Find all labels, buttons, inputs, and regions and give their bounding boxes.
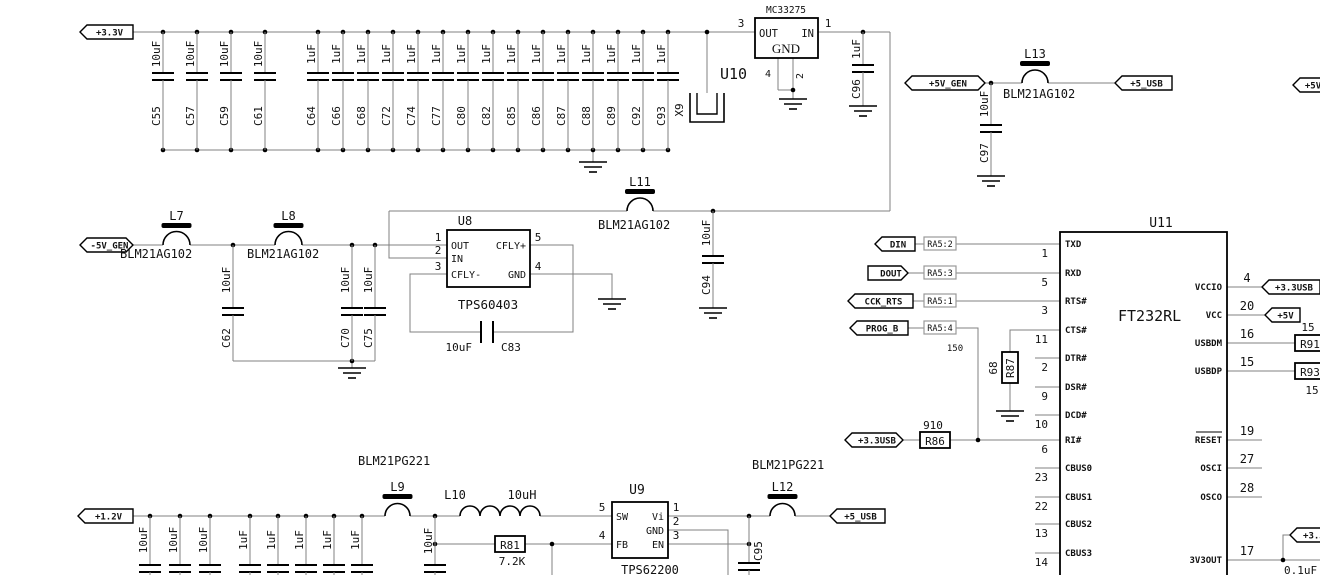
bead-hump (385, 504, 410, 517)
u11-pin-name-RI#: RI# (1065, 436, 1082, 446)
bead-hump (163, 232, 190, 246)
r91-ref: R91 (1300, 338, 1320, 351)
u11-pin-num: 10 (1035, 418, 1048, 431)
capacitor-C95: C95 (738, 516, 765, 575)
bead-hump (770, 504, 795, 517)
l7-part: BLM21AG102 (120, 247, 192, 261)
x9-ref: X9 (673, 103, 686, 116)
junction-dot (791, 88, 796, 93)
capacitor-value: 1uF (405, 44, 418, 64)
schematic-page: 10uFC5510uFC5710uFC5910uFC611uFC641uFC66… (0, 0, 1320, 575)
u8-pin-num-4: 4 (535, 260, 542, 273)
net-flag: +3.3V (80, 25, 133, 39)
u8-pin-num-2: 2 (435, 244, 442, 257)
wire (1283, 535, 1290, 560)
u11-pin-name-CBUS2: CBUS2 (1065, 520, 1092, 530)
ferrite-bead: L13 (1020, 47, 1050, 83)
capacitor-value: 1uF (480, 44, 493, 64)
u9-pin-gnd: GND (646, 526, 664, 537)
ra5-value: 150 (947, 344, 963, 354)
capacitor-ref: C61 (252, 106, 265, 126)
capacitor: 1uF (349, 516, 373, 575)
capacitor-C66: 1uFC66 (330, 32, 354, 150)
wire (493, 245, 573, 332)
u11-pin-num: 3 (1041, 304, 1048, 317)
capacitor-C62: 10uFC62 (220, 245, 244, 361)
u9-pin-en: EN (652, 540, 664, 551)
junction-dot (705, 30, 710, 35)
capacitor-C89: 1uFC89 (605, 32, 629, 150)
bead-ref: L8 (281, 209, 295, 223)
capacitor-C57: 10uFC57 (184, 32, 208, 150)
u11-pin-name-VCC: VCC (1206, 311, 1222, 321)
u9-pin-fb: FB (616, 540, 628, 551)
l8-part: BLM21AG102 (247, 247, 319, 261)
u8-pin-gnd: GND (508, 270, 526, 281)
u11-pin-num: 5 (1041, 276, 1048, 289)
ferrite-bead: L7 (162, 209, 192, 245)
ra5-label: RA5:2 (927, 240, 953, 250)
capacitor-value: 1uF (380, 44, 393, 64)
capacitor-ref: C97 (978, 143, 991, 163)
u8-pin-num-3: 3 (435, 260, 442, 273)
u11-pin-name-OSCI: OSCI (1200, 464, 1222, 474)
u11-pin-name-3V3OUT: 3V3OUT (1189, 556, 1222, 566)
u9-pin-num-1: 1 (673, 501, 680, 514)
capacitor-value: 10uF (422, 528, 435, 555)
net-flag-label: CCK_RTS (865, 298, 903, 308)
capacitor-value: 1uF (455, 44, 468, 64)
capacitor: 1uF (321, 516, 345, 575)
bead-hump (1022, 70, 1048, 83)
ferrite-bead: L8 (274, 209, 304, 245)
inductor-l10-coil (460, 506, 540, 516)
capacitor-ref: C87 (555, 106, 568, 126)
capacitor-C64: 1uFC64 (305, 32, 329, 150)
net-flag: +3.3USB (1262, 280, 1320, 294)
junction-dot (976, 438, 981, 443)
u11-pin-num: 9 (1041, 390, 1048, 403)
capacitor-C94: 10uFC94 (700, 211, 724, 308)
capacitor-C82: 1uFC82 (480, 32, 504, 150)
r86-value: 910 (923, 419, 943, 432)
capacitor-value: 1uF (655, 44, 668, 64)
capacitor-value: 1uF (355, 44, 368, 64)
capacitor-C80: 1uFC80 (455, 32, 479, 150)
ra5-network: RA5:2 RA5:3 RA5:1 RA5:4 150 (924, 237, 963, 354)
bead-bar (162, 223, 192, 228)
capacitor-ref: C86 (530, 106, 543, 126)
u11-pin-num: 2 (1041, 361, 1048, 374)
l11-part: BLM21AG102 (598, 218, 670, 232)
r81-ref: R81 (500, 539, 520, 552)
capacitor-ref: C66 (330, 106, 343, 126)
capacitor-ref: C95 (752, 541, 765, 561)
u11-pin-name-CTS#: CTS# (1065, 326, 1087, 336)
capacitor-value: 1uF (321, 530, 334, 550)
net-flag: +5_USB (1115, 76, 1172, 90)
u9-ref: U9 (629, 483, 645, 498)
capacitor-ref: C72 (380, 106, 393, 126)
u8-pin-out: OUT (451, 241, 469, 252)
ic-u8: U8 TPS60403 OUT IN CFLY- CFLY+ GND 1 2 3… (435, 214, 542, 354)
capacitor-C75: 10uFC75 (362, 245, 386, 361)
u9-pin-num-3: 3 (673, 529, 680, 542)
u10-pin-num-4: 4 (765, 69, 771, 80)
net-flag-label: +3.3USB (1303, 532, 1320, 542)
net-flag-label: +1.2V (95, 513, 123, 523)
u11-ref: U11 (1149, 216, 1172, 231)
r81-value: 7.2K (499, 555, 526, 568)
capacitor-value: 1uF (505, 44, 518, 64)
r91-value: 15 (1301, 321, 1314, 334)
capacitor-C88: 1uFC88 (580, 32, 604, 150)
capacitor-value: 1uF (305, 44, 318, 64)
capacitor-C93: 1uFC93 (655, 32, 679, 150)
capacitor: 10uF (197, 516, 221, 575)
capacitor-value: 10uF (184, 41, 197, 68)
u8-ref: U8 (458, 214, 472, 228)
u10-part: MC33275 (766, 5, 806, 16)
net-flag: +5V (1265, 308, 1300, 322)
net-flag: DIN (875, 237, 915, 251)
u10-ref: U10 (720, 65, 747, 83)
bead-hump (627, 198, 653, 211)
bead-bar (1020, 61, 1050, 66)
ra5-label: RA5:3 (927, 269, 953, 279)
net-flag-label: +5V_GEN (929, 80, 967, 90)
net-flag: +5V_GEN (905, 76, 985, 90)
capacitor-C68: 1uFC68 (355, 32, 379, 150)
c83-ref: C83 (501, 341, 521, 354)
capacitor-value: 10uF (218, 41, 231, 68)
u11-pin-num: 1 (1041, 247, 1048, 260)
u10-pin-out: OUT (759, 28, 779, 40)
capacitor-C97: 10uFC97 (978, 83, 1002, 176)
ra5-label: RA5:1 (927, 297, 953, 307)
net-flag-label: +5_USB (1130, 80, 1163, 90)
capacitor-value: 1uF (850, 39, 863, 59)
l13-part: BLM21AG102 (1003, 87, 1075, 101)
capacitor-value: 1uF (580, 44, 593, 64)
capacitor-C74: 1uFC74 (405, 32, 429, 150)
u11-pin-num: 4 (1243, 271, 1250, 285)
c-3v3out-value: 0.1uF (1284, 564, 1317, 575)
u11-pin-name-OSCO: OSCO (1200, 493, 1222, 503)
capacitor-value: 1uF (430, 44, 443, 64)
capacitor-value: 10uF (167, 527, 180, 554)
u10-pin-in: IN (801, 28, 814, 40)
u11-pin-name-RXD: RXD (1065, 269, 1082, 279)
u11-pin-num: 22 (1035, 500, 1048, 513)
capacitor-value: 10uF (339, 267, 352, 294)
u10-pin-num-2: 2 (795, 73, 806, 79)
net-flag: +5_USB (830, 509, 885, 523)
capacitor-ref: C94 (700, 275, 713, 295)
capacitor-value: 1uF (293, 530, 306, 550)
capacitor-ref: C57 (184, 106, 197, 126)
r93-value: 15 (1305, 384, 1318, 397)
connector-x9: X9 (673, 93, 724, 122)
u11-pin-num: 27 (1240, 452, 1254, 466)
schematic-canvas: 10uFC5510uFC5710uFC5910uFC611uFC641uFC66… (0, 0, 1320, 575)
capacitor-ref: C55 (150, 106, 163, 126)
ferrite-bead: L11 (625, 175, 655, 211)
capacitor-ref: C59 (218, 106, 231, 126)
net-flag: DOUT (868, 266, 908, 280)
capacitor-ref: C89 (605, 106, 618, 126)
r87-value: 68 (987, 361, 1000, 374)
net-flag-label: +3.3USB (1275, 284, 1314, 294)
bead-bar (625, 189, 655, 194)
u8-pin-cfly-plus: CFLY+ (496, 241, 526, 252)
capacitor-ref: C96 (850, 79, 863, 99)
u11-pin-num: 16 (1240, 327, 1254, 341)
capacitor-value: 1uF (330, 44, 343, 64)
net-flag: +3.3USB (845, 433, 903, 447)
capacitor-C92: 1uFC92 (630, 32, 654, 150)
u11-pin-num: 15 (1240, 355, 1254, 369)
bead-bar (274, 223, 304, 228)
net-flag: CCK_RTS (848, 294, 913, 308)
capacitor-value: 10uF (197, 527, 210, 554)
capacitor-ref: C88 (580, 106, 593, 126)
u8-pin-num-1: 1 (435, 231, 442, 244)
u8-pin-in: IN (451, 254, 463, 265)
l9-part: BLM21PG221 (358, 454, 430, 468)
capacitor-value: 1uF (605, 44, 618, 64)
u11-pin-num: 20 (1240, 299, 1254, 313)
u11-pin-num: 6 (1041, 443, 1048, 456)
u11-pin-name-DTR#: DTR# (1065, 354, 1087, 364)
capacitor-ref: C64 (305, 106, 318, 126)
u11-pin-name-USBDP: USBDP (1195, 367, 1223, 377)
capacitor: 1uF (293, 516, 317, 575)
capacitor: 1uF (265, 516, 289, 575)
bead-hump (275, 232, 302, 246)
capacitor-value: 1uF (349, 530, 362, 550)
ic-u9: U9 TPS62200 SW Vi GND FB EN 5 4 1 2 3 (599, 483, 680, 575)
u11-pin-name-DCD#: DCD# (1065, 411, 1087, 421)
u9-pin-vi: Vi (652, 512, 664, 523)
bead-ref: L7 (169, 209, 183, 223)
u11-pin-num: 17 (1240, 544, 1254, 558)
net-flag: PROG_B (850, 321, 908, 335)
x9-bracket-inner (697, 93, 717, 114)
u10-pin-num-3: 3 (738, 17, 745, 30)
capacitor-C87: 1uFC87 (555, 32, 579, 150)
capacitor-ref: C80 (455, 106, 468, 126)
bead-ref: L13 (1024, 47, 1046, 61)
u9-pin-num-2: 2 (673, 515, 680, 528)
capacitor-C96: 1uFC96 (850, 32, 874, 106)
c83-value: 10uF (446, 341, 473, 354)
bead-ref: L9 (390, 480, 404, 494)
ra5-label: RA5:4 (927, 324, 953, 334)
capacitor-C61: 10uFC61 (252, 32, 276, 150)
capacitor-value: 1uF (555, 44, 568, 64)
u11-pin-name-TXD: TXD (1065, 240, 1082, 250)
capacitor-ref: C77 (430, 106, 443, 126)
capacitor: 10uF (422, 516, 446, 575)
u9-pin-num-4: 4 (599, 529, 606, 542)
capacitor-ref: C68 (355, 106, 368, 126)
capacitor-ref: C93 (655, 106, 668, 126)
u11-part: FT232RL (1118, 307, 1181, 325)
bead-ref: L11 (629, 175, 651, 189)
u11-pin-num: 19 (1240, 424, 1254, 438)
capacitor-ref: C75 (362, 328, 375, 348)
net-flag: +5V (1293, 78, 1320, 92)
capacitor: 1uF (237, 516, 261, 575)
capacitor-ref: C92 (630, 106, 643, 126)
u11-pin-name-RESET: RESET (1195, 436, 1223, 446)
bead-bar (383, 494, 413, 499)
net-flag: +3.3USB (1290, 528, 1320, 542)
u11-pin-name-CBUS0: CBUS0 (1065, 464, 1092, 474)
u8-pin-cfly-minus: CFLY- (451, 270, 481, 281)
capacitor-C77: 1uFC77 (430, 32, 454, 150)
capacitor: 10uF (137, 516, 161, 575)
ferrite-bead: L12 (768, 480, 798, 516)
net-flag: +1.2V (78, 509, 133, 523)
wire (530, 274, 612, 299)
capacitor-value: 10uF (252, 41, 265, 68)
r93-ref: R93 (1300, 366, 1320, 379)
capacitor-C86: 1uFC86 (530, 32, 554, 150)
capacitor-ref: C70 (339, 328, 352, 348)
bead-bar (768, 494, 798, 499)
capacitor-value: 10uF (150, 41, 163, 68)
u10-pin-gnd: GND (772, 41, 800, 56)
capacitor-value: 10uF (700, 220, 713, 247)
l10-value: 10uH (508, 488, 537, 502)
u11-pin-name-CBUS3: CBUS3 (1065, 549, 1092, 559)
net-flag-label: +5V (1305, 82, 1320, 92)
capacitor-value: 10uF (137, 527, 150, 554)
u9-pin-sw: SW (616, 512, 629, 523)
capacitor-value: 1uF (265, 530, 278, 550)
u10-pin-num-1: 1 (825, 17, 832, 30)
u11-pins: TXD1RXD5RTS#3CTS#11DTR#2DSR#9DCD#10RI#6C… (1035, 240, 1254, 569)
capacitor-ref: C85 (505, 106, 518, 126)
capacitor-ref: C62 (220, 328, 233, 348)
junction-dot (550, 542, 555, 547)
capacitor-value: 1uF (237, 530, 250, 550)
capacitor-C59: 10uFC59 (218, 32, 242, 150)
u11-pin-num: 23 (1035, 471, 1048, 484)
capacitor-value: 10uF (978, 91, 991, 118)
net-flag-label: +3.3USB (858, 437, 897, 447)
components: 10uFC5510uFC5710uFC5910uFC611uFC641uFC66… (78, 25, 1320, 575)
l10-ref: L10 (444, 488, 466, 502)
capacitor-C72: 1uFC72 (380, 32, 404, 150)
r87-ref: R87 (1004, 358, 1017, 378)
u11-pin-num: 28 (1240, 481, 1254, 495)
capacitor-ref: C82 (480, 106, 493, 126)
capacitor-value: 1uF (630, 44, 643, 64)
ic-u11: U11 FT232RL TXD1RXD5RTS#3CTS#11DTR#2DSR#… (1035, 216, 1254, 575)
u11-pin-num: 11 (1035, 333, 1048, 346)
capacitor-ref: C74 (405, 106, 418, 126)
r86-ref: R86 (925, 435, 945, 448)
capacitor-C70: 10uFC70 (339, 245, 363, 361)
capacitor-value: 10uF (220, 267, 233, 294)
net-flag-label: +5V (1277, 312, 1294, 322)
u9-pin-num-5: 5 (599, 501, 606, 514)
u11-pin-num: 13 (1035, 527, 1048, 540)
u8-pin-num-5: 5 (535, 231, 542, 244)
net-flag-label: +3.3V (96, 29, 124, 39)
net-flag-label: PROG_B (866, 325, 899, 335)
net-flag-label: +5_USB (844, 513, 877, 523)
net-flag-label: DOUT (880, 270, 902, 280)
u11-pin-name-RTS#: RTS# (1065, 297, 1087, 307)
junction-dot (1281, 558, 1286, 563)
u11-pin-name-CBUS1: CBUS1 (1065, 493, 1092, 503)
ferrite-bead: L9 (383, 480, 413, 516)
u11-pin-name-USBDM: USBDM (1195, 339, 1223, 349)
u11-pin-name-DSR#: DSR# (1065, 383, 1087, 393)
capacitor-value: 10uF (362, 267, 375, 294)
u11-pin-name-VCCIO: VCCIO (1195, 283, 1223, 293)
l12-part: BLM21PG221 (752, 458, 824, 472)
ic-u10: MC33275 U10 OUT IN GND 3 1 4 2 (720, 5, 831, 83)
u9-part: TPS62200 (621, 563, 679, 575)
capacitor-C55: 10uFC55 (150, 32, 174, 150)
bead-ref: L12 (772, 480, 794, 494)
capacitor-value: 1uF (530, 44, 543, 64)
u8-part: TPS60403 (458, 297, 518, 312)
net-flag-label: DIN (890, 241, 906, 251)
u11-pin-num: 14 (1035, 556, 1049, 569)
capacitor-C85: 1uFC85 (505, 32, 529, 150)
capacitor: 10uF (167, 516, 191, 575)
x9-bracket-outer (690, 93, 724, 122)
